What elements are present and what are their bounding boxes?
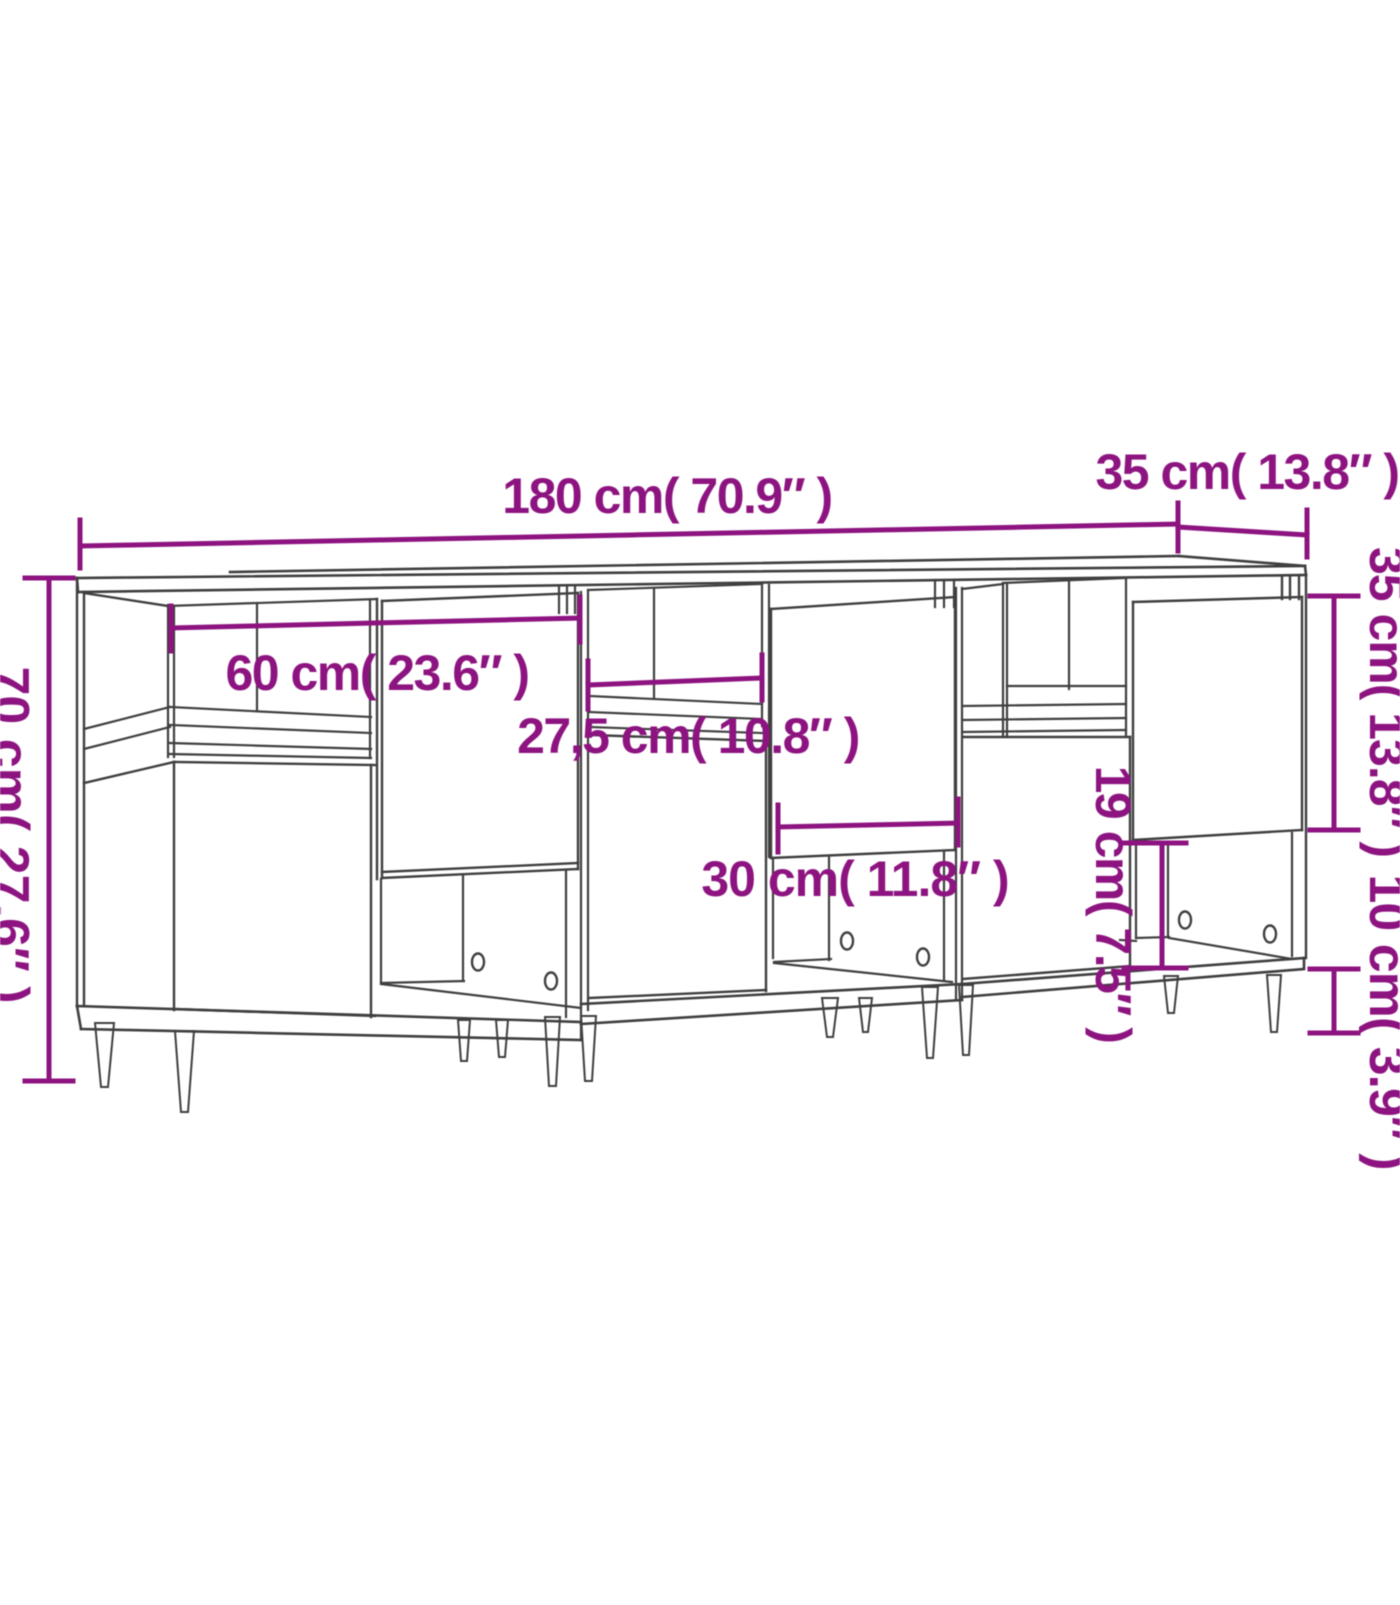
svg-text:27,5 cm( 10.8″ ): 27,5 cm( 10.8″ ) xyxy=(517,708,859,764)
svg-text:35 cm( 13.8″ ): 35 cm( 13.8″ ) xyxy=(1095,444,1398,500)
svg-text:35 cm( 13.8″ ): 35 cm( 13.8″ ) xyxy=(1359,547,1400,857)
svg-text:19 cm( 7.5″ ): 19 cm( 7.5″ ) xyxy=(1085,766,1141,1043)
svg-text:10 cm( 3.9″ ): 10 cm( 3.9″ ) xyxy=(1358,874,1400,1169)
svg-text:180 cm( 70.9″ ): 180 cm( 70.9″ ) xyxy=(502,468,831,524)
svg-text:60 cm( 23.6″ ): 60 cm( 23.6″ ) xyxy=(225,645,528,701)
svg-text:30 cm( 11.8″ ): 30 cm( 11.8″ ) xyxy=(701,851,1008,907)
svg-text:70 cm( 27.6″ ): 70 cm( 27.6″ ) xyxy=(0,666,39,1003)
